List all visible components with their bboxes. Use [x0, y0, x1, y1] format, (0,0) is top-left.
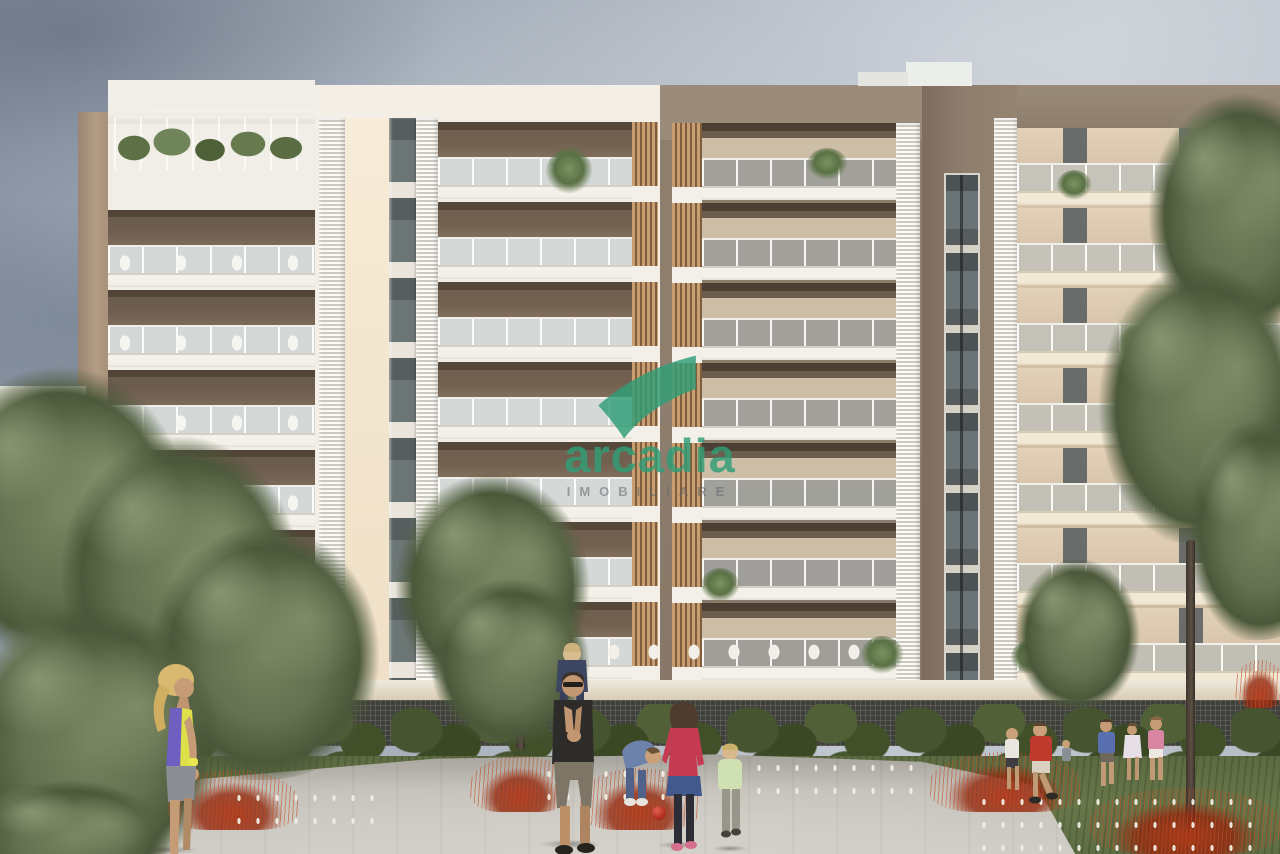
watermark: arcadia IMOBILIARE	[540, 352, 760, 512]
architectural-render-scene: arcadia IMOBILIARE	[0, 0, 1280, 854]
ponytail	[154, 684, 170, 732]
balcony-floor	[438, 282, 632, 362]
person-toddler-green	[710, 740, 750, 854]
balcony-floor	[108, 210, 315, 290]
person-girl-red-jacket	[658, 700, 710, 852]
person-man-carrying-toddler	[528, 640, 620, 854]
watermark-subtitle: IMOBILIARE	[530, 484, 770, 499]
balcony-floor	[108, 290, 315, 370]
roof-step	[858, 72, 908, 86]
red-ball	[652, 806, 666, 820]
wristband	[188, 758, 198, 766]
balcony-plant	[1056, 170, 1092, 200]
balcony-floor	[702, 203, 914, 283]
terrace-plant	[860, 636, 904, 674]
roof-terrace-plants	[114, 116, 315, 170]
balcony-floor	[702, 283, 914, 363]
balcony-floor	[438, 202, 632, 282]
tree	[1015, 555, 1140, 710]
stairwell-glazing	[944, 173, 980, 695]
stair-tower	[922, 85, 1017, 712]
balcony-plant	[700, 568, 740, 602]
balcony-plant	[806, 148, 848, 180]
person-child-denim	[612, 726, 662, 806]
white-flower-spikes	[230, 792, 380, 838]
sunglasses	[563, 682, 583, 687]
balcony-floor	[438, 122, 632, 202]
roof-parapet-box	[906, 62, 972, 86]
balcony-plant	[545, 148, 593, 194]
watermark-brand: arcadia	[540, 432, 760, 479]
white-flower-spikes	[750, 762, 920, 808]
red-ornamental-grass	[1235, 660, 1280, 708]
ribbed-pilaster	[896, 123, 920, 685]
kids-group-right	[992, 712, 1192, 820]
waist-wrap	[666, 776, 702, 796]
ribbed-pilaster	[994, 118, 1017, 712]
